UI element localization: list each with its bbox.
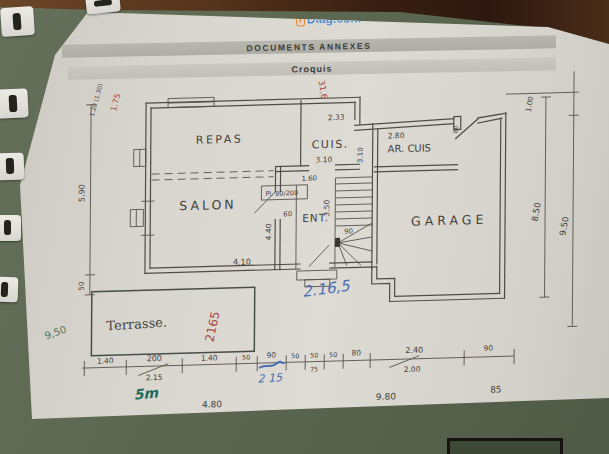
floorplan-sketch: REPAS CUIS. AR. CUIS SALON ENT. GARAGE T… <box>39 62 609 454</box>
dim-b9: 2.40 <box>405 346 423 355</box>
binder-tab <box>85 0 121 15</box>
section-title: DOCUMENTS ANNEXES <box>246 40 371 52</box>
dim-b5: 50 <box>291 352 299 360</box>
room-label-terrasse: Terrasse. <box>106 315 167 334</box>
dim-hall-width: 3.10 <box>316 155 333 164</box>
binder-slot <box>4 220 11 235</box>
dim-b7: 50 <box>329 351 337 359</box>
dim-ent-depth: 3.50 <box>322 200 331 217</box>
dim-b8: 80 <box>351 348 361 357</box>
binder-slot <box>1 282 9 297</box>
annotation-red-topleft: 1.75 <box>109 93 122 112</box>
dim-b1: 200 <box>147 354 162 363</box>
dim-kitchen-width: 2.33 <box>328 113 345 122</box>
dim-garage-door: 80 <box>452 126 459 134</box>
chimney-left-bottom <box>130 209 143 226</box>
dim-b10: 90 <box>483 344 493 353</box>
dim-b0: 1.40 <box>97 356 114 365</box>
staircase <box>335 177 373 268</box>
dim-arcuis-width: 2.80 <box>388 131 405 140</box>
dim-b4: 90 <box>266 351 276 360</box>
annotation-green-left: 9,50 <box>43 324 68 342</box>
document-page: i Diag.com DOCUMENTS ANNEXES Croquis <box>0 0 609 454</box>
dim-hall-door: 1.60 <box>301 174 317 182</box>
dim-topleft-window: 1.20 (1.30) <box>88 83 104 117</box>
dim-sub-240: 2.00 <box>404 365 421 374</box>
annotation-red-terrace: 2165 <box>202 310 222 343</box>
binder-slot <box>12 13 21 31</box>
entry-door-swing <box>309 245 329 267</box>
bottom-dimension-row: 1.40 200 1.40 50 90 50 50 50 80 2.40 90 … <box>97 343 502 412</box>
closet-label: Pl. 80/200 <box>265 189 298 198</box>
room-label-salon: SALON <box>179 197 237 214</box>
photo-of-document: { "header": { "brand_icon": "i", "brand"… <box>0 0 609 454</box>
annotation-blue-bottom: 2 15 <box>257 371 283 386</box>
binder-slot <box>94 0 113 7</box>
room-label-arriere-cuisine: AR. CUIS <box>388 142 431 154</box>
binder-tab <box>0 277 18 303</box>
room-label-garage: GARAGE <box>411 212 487 229</box>
dim-right-inner: 8.50 <box>530 202 543 222</box>
dim-left-bottom: 50 <box>78 282 86 291</box>
room-label-repas: REPAS <box>196 133 244 147</box>
dim-sub-75: 75 <box>310 366 318 374</box>
binder-tab <box>0 153 24 181</box>
pen-annotations: 2.16,5 2 15 2165 1.75 31,6 9,50 5m <box>43 79 354 406</box>
binder-tab <box>0 215 21 241</box>
dim-edge-2: 85 <box>490 384 502 394</box>
brand-logo-icon: i <box>296 13 305 26</box>
dim-salon-depth: 4.40 <box>264 223 273 240</box>
binder-tab <box>0 6 35 37</box>
brand-name: Diag.com <box>307 11 361 26</box>
brand-logo: i Diag.com <box>296 10 361 27</box>
black-object-corner <box>447 438 563 454</box>
annotation-red-top: 31,6 <box>317 79 330 100</box>
dim-right-outer: 9.50 <box>557 216 570 236</box>
dim-sub-200: 2.15 <box>146 373 163 382</box>
closet-depth-label: 60 <box>283 210 292 218</box>
dim-b3: 50 <box>242 353 250 361</box>
binder-slot <box>6 158 15 174</box>
dim-kitchen-step: 3.10 <box>357 147 365 163</box>
dim-edge-0: 4.80 <box>202 399 222 410</box>
dim-left-height: 5.90 <box>77 184 86 202</box>
dim-edge-1: 9.80 <box>376 391 396 402</box>
binder-slot <box>9 95 18 112</box>
binder-tab <box>0 88 29 119</box>
annotation-green-scale: 5m <box>133 384 160 402</box>
room-label-cuisine: CUIS. <box>312 138 349 152</box>
dim-b6: 50 <box>310 352 318 360</box>
dim-b2: 1.40 <box>201 353 218 362</box>
dim-right-top: 1.00 <box>525 96 536 113</box>
dim-salon-width: 4.10 <box>233 257 251 266</box>
section-banner: DOCUMENTS ANNEXES <box>62 35 556 57</box>
dim-stair-width: 90 <box>344 227 353 235</box>
